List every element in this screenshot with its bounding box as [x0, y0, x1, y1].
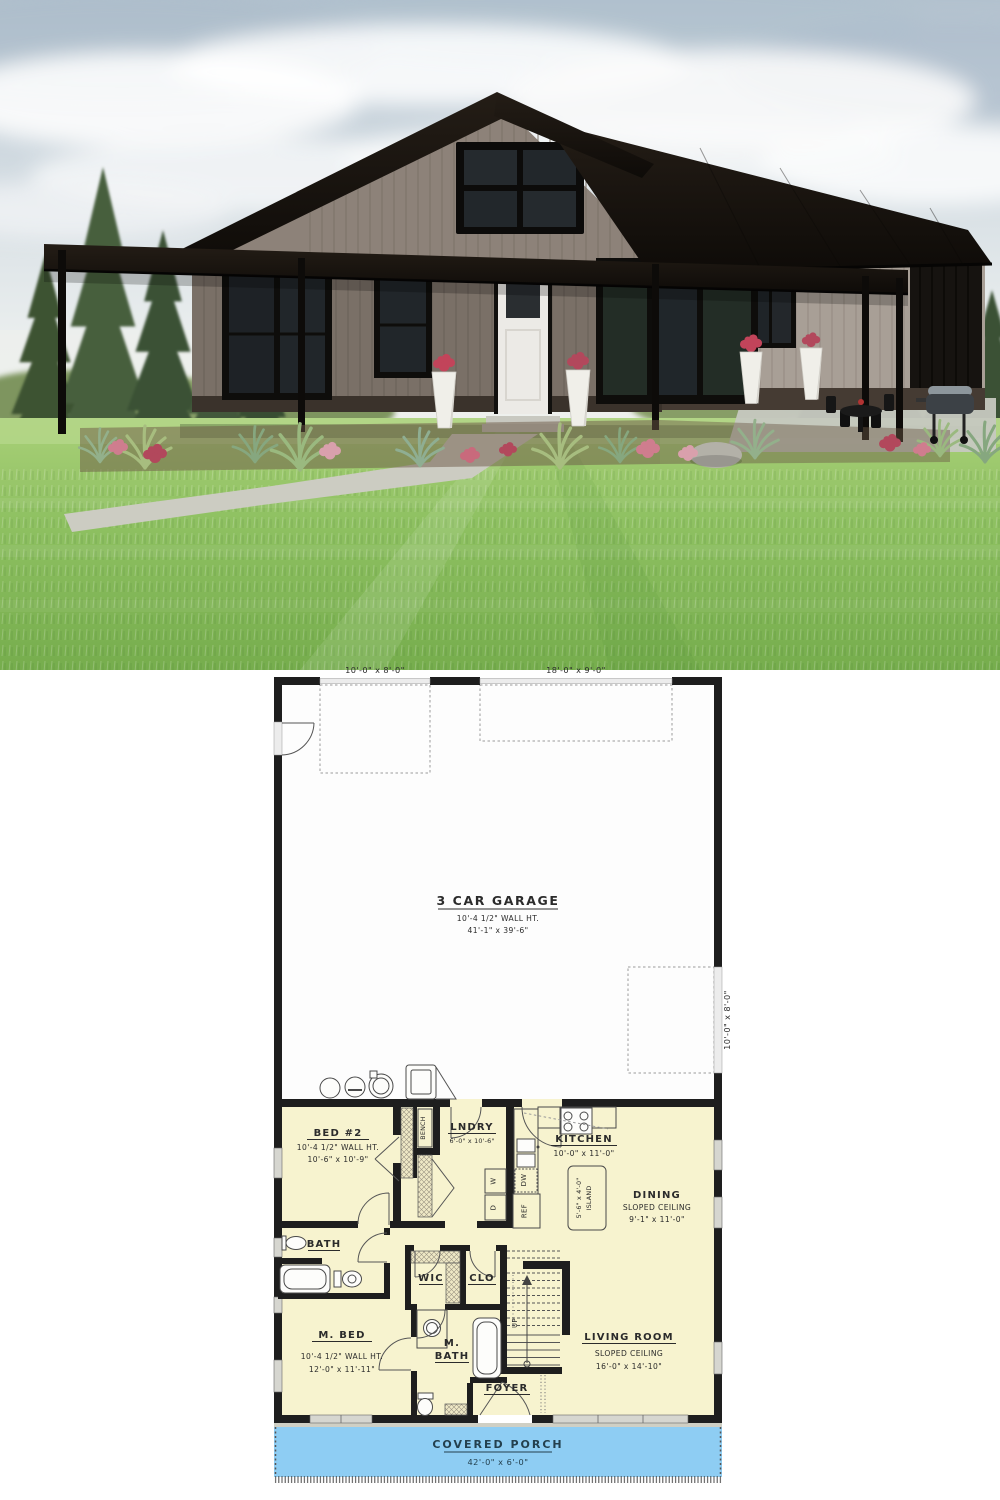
siding-sill	[274, 1423, 722, 1427]
side-door-dim: 10'-0" x 8'-0"	[722, 990, 732, 1050]
porch-dims: 42'-0" x 6'-0"	[467, 1457, 528, 1467]
kitchen-dims: 10'-0" x 11'-0"	[554, 1149, 615, 1158]
garage-floor	[278, 685, 718, 1099]
floor-plan: 10'-0" x 8'-0" 18'-0" x 9'-0" 10'-0" x 8…	[261, 661, 745, 1500]
island-label: ISLAND	[585, 1186, 593, 1211]
wic-title: WIC	[418, 1273, 444, 1284]
laundry-title: LNDRY	[450, 1122, 493, 1133]
dining-title: DINING	[633, 1190, 681, 1201]
living-title: LIVING ROOM	[584, 1332, 673, 1343]
dining-ceiling: SLOPED CEILING	[623, 1203, 691, 1212]
dryer-label: D	[490, 1205, 498, 1211]
mbath-line2: BATH	[435, 1351, 470, 1362]
clo-title: CLO	[469, 1273, 494, 1284]
porch-edge	[274, 1476, 722, 1483]
up-label: UP	[511, 1318, 519, 1328]
bed2-wall-ht: 10'-4 1/2" WALL HT.	[297, 1143, 380, 1152]
bench-label: BENCH	[419, 1116, 427, 1139]
attic-window	[456, 142, 584, 234]
island-dims: 5'-6" x 4'-0"	[575, 1178, 583, 1219]
kitchen-title: KITCHEN	[555, 1134, 613, 1145]
garage-title: 3 CAR GARAGE	[436, 893, 559, 908]
garage-wall-ht: 10'-4 1/2" WALL HT.	[457, 914, 540, 923]
mbed-title: M. BED	[318, 1330, 365, 1341]
laundry-dims: 6'-0" x 10'-6"	[450, 1137, 495, 1145]
mbed-wall-ht: 10'-4 1/2" WALL HT.	[301, 1352, 384, 1361]
house-plan-image: 10'-0" x 8'-0" 18'-0" x 9'-0" 10'-0" x 8…	[0, 0, 1000, 1500]
mbath-line1: M.	[444, 1338, 460, 1349]
fridge-label: REF	[521, 1204, 529, 1218]
bed2-dims: 10'-6" x 10'-9"	[308, 1155, 369, 1164]
living-ceiling: SLOPED CEILING	[595, 1349, 663, 1358]
bed2-title: BED #2	[314, 1128, 363, 1139]
top-door-small-dim: 10'-0" x 8'-0"	[345, 665, 405, 675]
exterior-rendering	[0, 0, 1000, 670]
top-door-large-dim: 18'-0" x 9'-0"	[546, 665, 606, 675]
wing-garage-door	[910, 258, 982, 390]
garage-dims: 41'-1" x 39'-6"	[468, 926, 529, 935]
living-dims: 16'-0" x 14'-10"	[596, 1362, 662, 1371]
porch-title: COVERED PORCH	[432, 1438, 563, 1451]
dining-dims: 9'-1" x 11'-0"	[629, 1215, 685, 1224]
mbed-dims: 12'-0" x 11'-11"	[309, 1365, 375, 1374]
foyer-title: FOYER	[486, 1383, 529, 1394]
bath-title: BATH	[307, 1239, 342, 1250]
washer-label: W	[490, 1177, 498, 1184]
dishwasher-label: DW	[520, 1174, 528, 1187]
